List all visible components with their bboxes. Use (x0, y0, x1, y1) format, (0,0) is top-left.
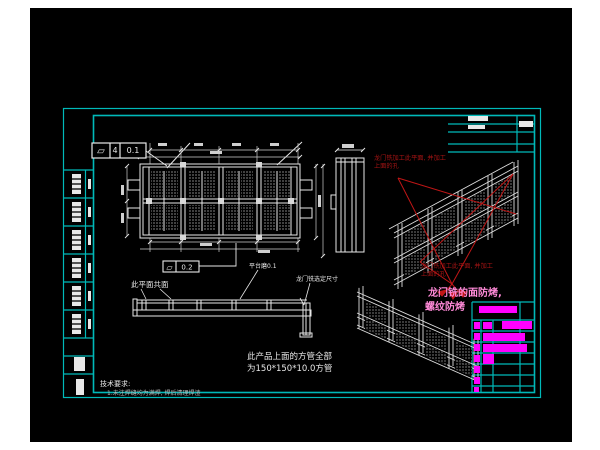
square-tube-note-line1: 此产品上面的方管全部 (247, 351, 333, 362)
red-note-mid-line2: 上面的孔 (421, 270, 446, 278)
flatness-symbol-2: ▱ (166, 263, 173, 272)
red-note-mid-line1: 龙门铣加工此平面, 并加工 (421, 262, 493, 270)
tech-req-title: 技术要求: (100, 379, 130, 388)
coplanar-label: 此平面共面 (131, 279, 169, 289)
cad-viewport (30, 8, 572, 442)
platform-allowance-label: 平台磨0.1 (249, 262, 277, 270)
cad-drawing-svg: ▱ 4 0.1 ▱ 0.2 此平面共面 (0, 0, 600, 450)
flatness-symbol: ▱ (97, 146, 105, 157)
tech-req-item1: 1.未注焊缝均为满焊, 焊后清理焊渣 (107, 389, 201, 397)
cad-screenshot: ▱ 4 0.1 ▱ 0.2 此平面共面 (0, 0, 600, 450)
magenta-note-line2: 螺纹防烤 (425, 300, 465, 313)
red-note-top-line2: 上面的孔 (374, 162, 399, 170)
magenta-note-line1: 龙门铣的面防烤, (427, 286, 502, 299)
flatness-value-2: 0.2 (181, 264, 192, 272)
red-note-top-line1: 龙门铣加工此平面, 并加工 (374, 154, 446, 162)
square-tube-note-line2: 为150*150*10.0方管 (247, 363, 332, 374)
flatness-datum: 4 (112, 146, 117, 155)
gantry-mill-size-label: 龙门铣选定尺寸 (296, 275, 338, 283)
flatness-value: 0.1 (127, 146, 140, 155)
